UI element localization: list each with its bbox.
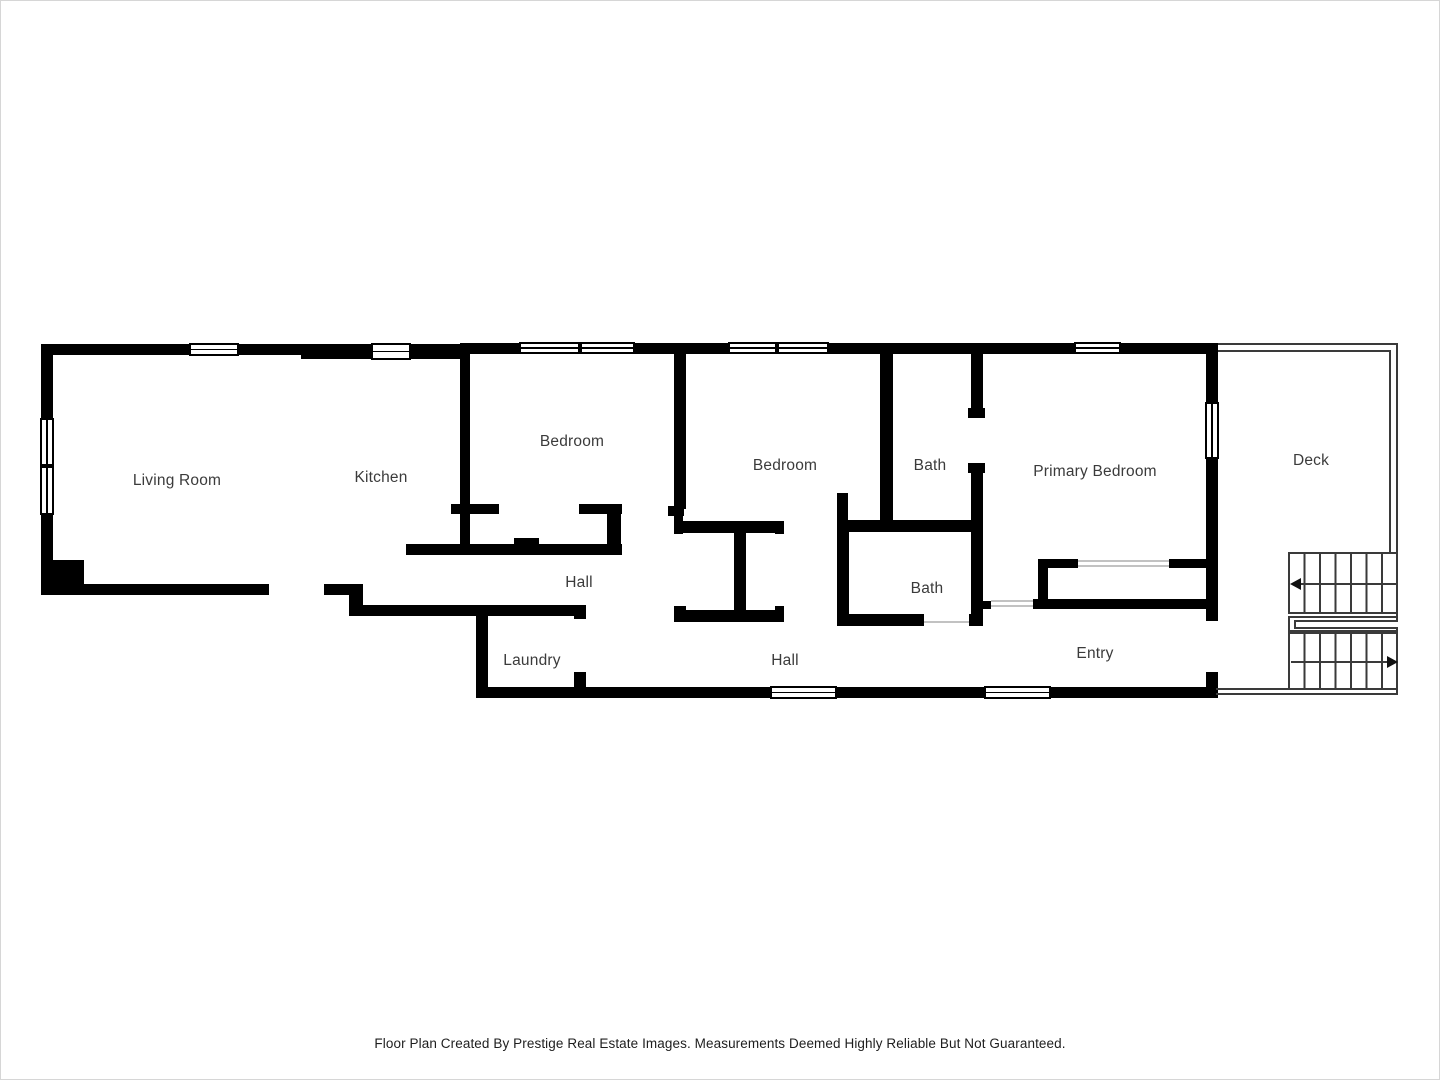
door-threshold-line — [924, 621, 969, 623]
window-pane-line — [46, 420, 48, 464]
wall — [983, 601, 991, 609]
wall — [838, 520, 974, 532]
wall — [41, 344, 189, 355]
wall — [668, 506, 684, 516]
wall — [734, 521, 746, 622]
room-label-laundry: Laundry — [503, 652, 560, 670]
wall — [1169, 559, 1208, 568]
wall — [1206, 458, 1218, 621]
wall — [476, 605, 488, 696]
footer-disclaimer: Floor Plan Created By Prestige Real Esta… — [1, 1036, 1439, 1051]
wall — [349, 584, 363, 616]
window — [984, 686, 1051, 699]
stairs-direction-line — [1291, 661, 1387, 663]
wall — [301, 344, 371, 359]
deck-railing-line — [1218, 350, 1391, 352]
room-label-hall-lower: Hall — [771, 652, 799, 670]
wall — [971, 343, 983, 418]
deck-railing-line — [1218, 343, 1398, 345]
window-pane-line — [1211, 404, 1213, 457]
wall — [634, 343, 674, 354]
window — [189, 343, 239, 356]
window-pane-line — [582, 347, 633, 349]
closet-opening-line — [1078, 565, 1169, 567]
wall — [514, 538, 539, 554]
stairs-arrow-left — [1290, 578, 1301, 590]
wall — [1038, 559, 1048, 608]
wall — [837, 614, 924, 626]
wall — [1051, 687, 1208, 698]
wall — [674, 516, 683, 534]
window — [1074, 342, 1121, 354]
wall — [880, 352, 893, 521]
room-label-bath-lower: Bath — [911, 580, 944, 598]
stairs-direction-line — [1297, 583, 1396, 585]
wall — [574, 605, 586, 619]
window-pane-line — [46, 468, 48, 513]
room-label-hall-upper: Hall — [565, 574, 593, 592]
window-pane-line — [986, 692, 1049, 694]
wall — [674, 352, 686, 509]
wall — [971, 463, 983, 622]
wall — [460, 352, 470, 555]
wall — [411, 344, 460, 359]
wall — [828, 343, 1074, 354]
wall — [84, 584, 269, 595]
room-label-bedroom-1: Bedroom — [540, 433, 604, 451]
room-label-entry: Entry — [1076, 645, 1113, 663]
window-pane-line — [779, 347, 827, 349]
room-label-primary-bedroom: Primary Bedroom — [1033, 463, 1157, 481]
window-pane-line — [373, 351, 409, 353]
stairs-arrow-right — [1387, 656, 1398, 668]
door-threshold-line — [991, 600, 1033, 602]
window-pane-line — [191, 349, 237, 351]
window — [728, 342, 777, 354]
window — [580, 342, 635, 354]
deck-railing-line — [1389, 350, 1391, 553]
window — [40, 418, 54, 466]
wall — [968, 408, 985, 418]
wall — [476, 605, 586, 616]
wall — [451, 504, 499, 514]
wall — [239, 344, 301, 355]
floor-plan-canvas: Living Room Kitchen Bedroom Bedroom Bath… — [0, 0, 1440, 1080]
closet-opening-line — [1078, 560, 1169, 562]
room-label-bath-upper: Bath — [914, 457, 947, 475]
room-label-bedroom-2: Bedroom — [753, 457, 817, 475]
wall — [1121, 343, 1218, 354]
window — [777, 342, 829, 354]
wall — [837, 520, 849, 622]
wall — [476, 687, 770, 698]
wall — [1033, 599, 1208, 609]
window — [770, 686, 837, 699]
wall — [775, 521, 784, 534]
window — [371, 343, 411, 360]
window-pane-line — [730, 347, 775, 349]
window-pane-line — [521, 347, 578, 349]
window-pane-line — [772, 692, 835, 694]
window-pane-line — [1076, 347, 1119, 349]
window — [519, 342, 580, 354]
room-label-living-room: Living Room — [133, 472, 221, 490]
wall — [363, 605, 479, 616]
stairs-handrail — [1294, 620, 1398, 629]
window — [1205, 402, 1219, 459]
wall — [41, 344, 53, 419]
room-label-kitchen: Kitchen — [354, 469, 407, 487]
window — [40, 466, 54, 515]
door-threshold-line — [991, 605, 1033, 607]
wall — [41, 560, 84, 595]
wall — [674, 610, 784, 622]
wall — [1206, 343, 1218, 403]
wall — [837, 493, 848, 520]
room-label-deck: Deck — [1293, 452, 1329, 470]
deck-railing-line — [1216, 693, 1398, 695]
wall — [837, 687, 984, 698]
